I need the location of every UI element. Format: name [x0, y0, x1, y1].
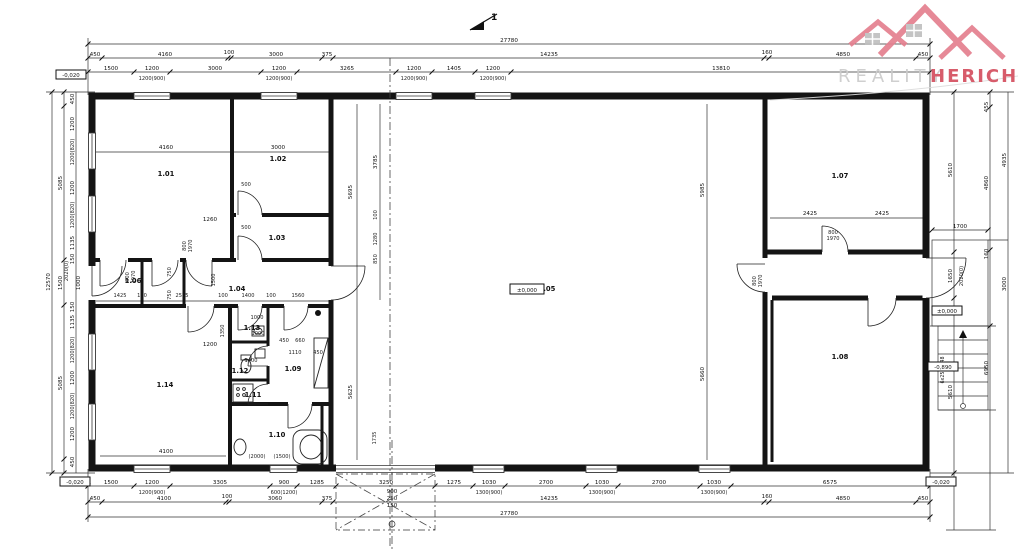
porch-opening	[336, 465, 435, 473]
dim: 100	[218, 293, 228, 299]
dim: 1200	[70, 426, 76, 441]
elevation-markers: -0,020 ±0,000 ±0,000 -0,890 -0,020 -0,02…	[56, 70, 962, 486]
dim: 1400	[242, 293, 255, 299]
door-106a	[100, 260, 126, 286]
dim: 2700	[539, 480, 554, 486]
dim: 3000	[208, 66, 223, 72]
dim-left-total: 12570	[46, 273, 52, 291]
dim: 2425	[803, 211, 818, 217]
dim: 450	[918, 52, 929, 58]
door-height-label: 1970	[758, 275, 764, 288]
dim-sub: 1300(900)	[701, 490, 728, 496]
dim: 4850	[836, 52, 851, 58]
door-arcs	[92, 191, 966, 428]
room-label-113: 1.13	[244, 324, 261, 332]
dim: 1200(820)	[70, 202, 76, 229]
dim: 1200(820)	[70, 337, 76, 364]
dim: 1735	[372, 432, 378, 445]
dim: 100	[373, 210, 379, 220]
room-label-107: 1.07	[832, 172, 849, 180]
dim-sub: 1200(900)	[401, 76, 428, 82]
dim: 1350	[220, 325, 226, 338]
dim: 4160	[158, 52, 173, 58]
dim: 375	[322, 496, 333, 502]
logo-word-herich: HERICH	[930, 66, 1018, 87]
dim: 1260	[203, 217, 218, 223]
door-103	[238, 236, 262, 260]
dim: 14235	[540, 496, 558, 502]
dim-sub: 1300(900)	[589, 490, 616, 496]
dim: 1200	[407, 66, 422, 72]
elevation-right-bottom: -0,890	[934, 365, 952, 371]
door-114	[188, 306, 214, 332]
dim: 160	[762, 494, 773, 500]
porch	[336, 440, 435, 552]
dim: 3250	[379, 480, 394, 486]
dim: 100	[224, 50, 235, 56]
floor-plan-page: 27780 450 4160 100 3000 375 14235 160 48…	[0, 0, 1024, 552]
dim: 4935	[1002, 152, 1008, 167]
exterior-stairs: 6x250x148	[932, 240, 988, 410]
elevation-hall: ±0,000	[517, 288, 538, 294]
room-label-108: 1.08	[832, 353, 849, 361]
dim: 3060	[268, 496, 283, 502]
dim: 1560	[292, 293, 305, 299]
door-110	[288, 404, 312, 428]
dim: 500	[241, 225, 251, 231]
dim: 4860	[984, 175, 990, 190]
dim: 1700	[953, 224, 968, 230]
door-height-label: 1970	[827, 236, 840, 242]
elevation-right-top: ±0,000	[937, 309, 958, 315]
dim: 850	[373, 254, 379, 264]
dim: 1200	[203, 342, 218, 348]
door-106b	[152, 260, 178, 286]
room-label-110: 1.10	[269, 431, 286, 439]
room-label-112: 1.12	[232, 367, 249, 375]
dim: 1275	[447, 480, 462, 486]
door-102	[238, 191, 262, 215]
dim: 3000	[1002, 276, 1008, 291]
dim: 1650	[948, 268, 954, 283]
right-entry-opening	[923, 258, 931, 298]
dim: 3785	[373, 154, 379, 169]
dim: 150	[70, 253, 76, 264]
dim: 2575	[176, 293, 189, 299]
dim: 375	[322, 52, 333, 58]
dim: 5610	[948, 384, 954, 399]
door-101	[186, 260, 212, 286]
dim: 150	[70, 301, 76, 312]
structural-walls	[331, 96, 929, 466]
dim: 1030	[707, 480, 722, 486]
sink	[234, 439, 246, 455]
dim: 3305	[213, 480, 228, 486]
dim: 4100	[157, 496, 172, 502]
room-label-101: 1.01	[158, 170, 175, 178]
dim: 450	[70, 93, 76, 104]
dim: 1030	[482, 480, 497, 486]
top-dimensions: 27780 450 4160 100 3000 375 14235 160 48…	[90, 38, 929, 82]
dim: 1200(820)	[70, 393, 76, 420]
dim: 4160	[159, 145, 174, 151]
elevation-bottom-right: -0,020	[932, 480, 950, 486]
dim: 2700	[652, 480, 667, 486]
dim: 5985	[700, 182, 706, 197]
door-height-label: 1970	[188, 240, 194, 253]
dim: 450	[70, 456, 76, 467]
dim: 1135	[70, 235, 76, 250]
room-label-106: 1.06	[125, 277, 142, 285]
boiler-cabinet	[314, 310, 328, 388]
dim: 450	[918, 496, 929, 502]
dim: 6575	[823, 480, 838, 486]
dim: 1280	[373, 233, 379, 246]
dim: 14235	[540, 52, 558, 58]
flue-dot	[315, 310, 321, 316]
dim: 160	[984, 248, 990, 259]
dim: 1200	[145, 480, 160, 486]
dim: 1000	[76, 275, 82, 290]
dim: 5660	[700, 366, 706, 381]
door-108	[868, 298, 896, 326]
dim: 455	[984, 101, 990, 112]
dim: 4100	[159, 449, 174, 455]
room-label-102: 1.02	[270, 155, 287, 163]
dim: 1135	[70, 314, 76, 329]
logo-window-icon	[906, 24, 922, 37]
room-label-103: 1.03	[269, 234, 286, 242]
dimension-ticks	[50, 42, 993, 520]
dim: 1285	[310, 480, 325, 486]
dim: 3000	[271, 145, 286, 151]
door-left-entry	[92, 266, 122, 296]
dim: 750	[167, 290, 173, 300]
dim: 4850	[836, 496, 851, 502]
dim: 1200(820)	[70, 139, 76, 166]
dim: 660	[295, 338, 305, 344]
elevation-bottom-left: -0,020	[66, 480, 84, 486]
door-109	[284, 306, 308, 330]
dim: 160	[762, 50, 773, 56]
dim: 13810	[712, 66, 730, 72]
dim: 5085	[58, 375, 64, 390]
room-label-109: 1.09	[285, 365, 302, 373]
dim: 2425	[875, 211, 890, 217]
dim: 5085	[58, 175, 64, 190]
door-hall	[331, 266, 365, 300]
dim: 100	[222, 494, 233, 500]
dim-sub: 1300(900)	[476, 490, 503, 496]
dim: 100	[266, 293, 276, 299]
dim: 5695	[348, 184, 354, 199]
dim: 1200	[70, 116, 76, 131]
dim: 1425	[114, 293, 127, 299]
dim: 1030	[595, 480, 610, 486]
right-dimensions: 5610 1650 5610 2020(0) 455 4860 160 6950…	[948, 101, 1008, 399]
room-label-104: 1.04	[229, 285, 246, 293]
dim-bottom-total: 27780	[500, 511, 518, 517]
logo-window-icon	[865, 33, 880, 45]
dim: 5625	[348, 384, 354, 399]
dim: 750	[167, 267, 173, 277]
dim: (2000)	[249, 454, 266, 460]
dim-sub: 1200(900)	[266, 76, 293, 82]
fixtures	[233, 310, 328, 464]
dim: 450	[90, 52, 101, 58]
agency-logo: REALITY HERICH	[770, 8, 1018, 100]
dim: 450	[90, 496, 101, 502]
room-label-114: 1.14	[157, 381, 174, 389]
dim: 1200	[70, 180, 76, 195]
bottom-dimensions: 1500 1200 3305 900 1285 3250 1275 1030 2…	[90, 480, 929, 517]
dim: 1110	[289, 350, 302, 356]
room-label-111: 1.11	[245, 391, 262, 399]
dim: 1200	[486, 66, 501, 72]
dim-sub: 1200(900)	[480, 76, 507, 82]
dim: 3000	[269, 52, 284, 58]
dim: 450	[279, 338, 289, 344]
dim: 3265	[340, 66, 355, 72]
dim: 1405	[447, 66, 462, 72]
dim: (1500)	[274, 454, 291, 460]
dim: 1500	[104, 66, 119, 72]
dim-top-total: 27780	[500, 38, 518, 44]
dim: 1500	[104, 480, 119, 486]
dim: 500	[241, 182, 251, 188]
dim: 2020(0)	[64, 261, 70, 281]
floor-plan-drawing: 27780 450 4160 100 3000 375 14235 160 48…	[0, 0, 1024, 552]
dim: 5610	[948, 162, 954, 177]
elevation-top-left: -0,020	[62, 73, 80, 79]
dim: 1200	[272, 66, 287, 72]
dim-sub: 1200(900)	[139, 76, 166, 82]
dim: 1200	[145, 66, 160, 72]
dim: 450	[313, 350, 323, 356]
section-number: 1	[491, 13, 497, 23]
dim: 1200	[70, 370, 76, 385]
dim: 900	[279, 480, 290, 486]
stair-arrow-head	[959, 330, 967, 338]
